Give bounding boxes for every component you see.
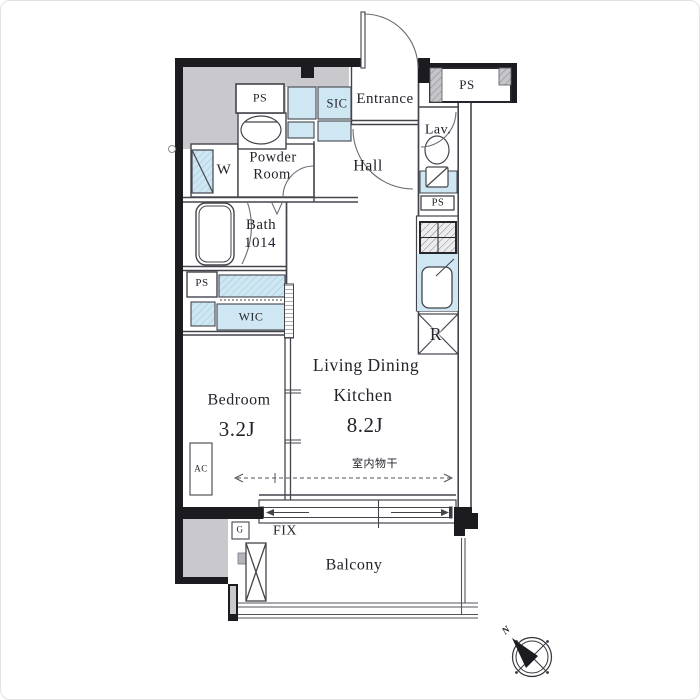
floor-plan: PS SIC Entrance PS Lav. W Powder Room Ha… (0, 0, 700, 700)
wall-marker (169, 146, 176, 153)
ps-label-top-right: PS (459, 78, 474, 92)
bath-label-2: 1014 (244, 236, 276, 252)
bathtub (196, 203, 234, 265)
ldk-label-1: Living Dining (313, 356, 419, 374)
ldk-label-2: Kitchen (334, 386, 393, 404)
sic-closet (288, 87, 351, 141)
bedroom-size-label: 3.2J (219, 418, 255, 440)
compass (512, 638, 552, 677)
ldk-size-label: 8.2J (347, 414, 383, 436)
front-door-arc (364, 14, 418, 68)
indoor-drying-line (235, 473, 452, 483)
refrigerator-label: R (430, 325, 442, 343)
sic-label: SIC (327, 97, 348, 110)
ps-label-top-left: PS (253, 92, 267, 105)
washbasin (241, 116, 281, 144)
lav-label: Lav. (425, 124, 451, 139)
toilet (420, 136, 457, 193)
floor-plan-drawing (1, 1, 700, 700)
ac-label: AC (194, 464, 208, 473)
washer-label: W (217, 163, 232, 179)
bath-label-1: Bath (246, 218, 276, 234)
wic-label: WIC (239, 311, 264, 324)
sink (422, 267, 452, 308)
indoor-drying-label: 室内物干 (352, 459, 398, 471)
partition-panel (246, 543, 266, 601)
kitchen-counter (417, 216, 459, 311)
ps-label-lav: PS (432, 197, 445, 208)
entrance-label: Entrance (356, 92, 413, 108)
bedroom-label: Bedroom (207, 393, 270, 410)
gas-meter-label: G (237, 525, 244, 534)
bedroom-ldk-partition (285, 338, 301, 500)
hall-label: Hall (353, 159, 383, 176)
washer-pan (192, 150, 213, 193)
fix-window-label: FIX (273, 525, 297, 540)
powder-room-label-2: Room (253, 167, 290, 182)
powder-room-label-1: Powder (249, 150, 296, 165)
balcony-label: Balcony (326, 558, 383, 575)
front-door-leaf (361, 12, 365, 68)
ps-label-wic: PS (195, 278, 208, 290)
